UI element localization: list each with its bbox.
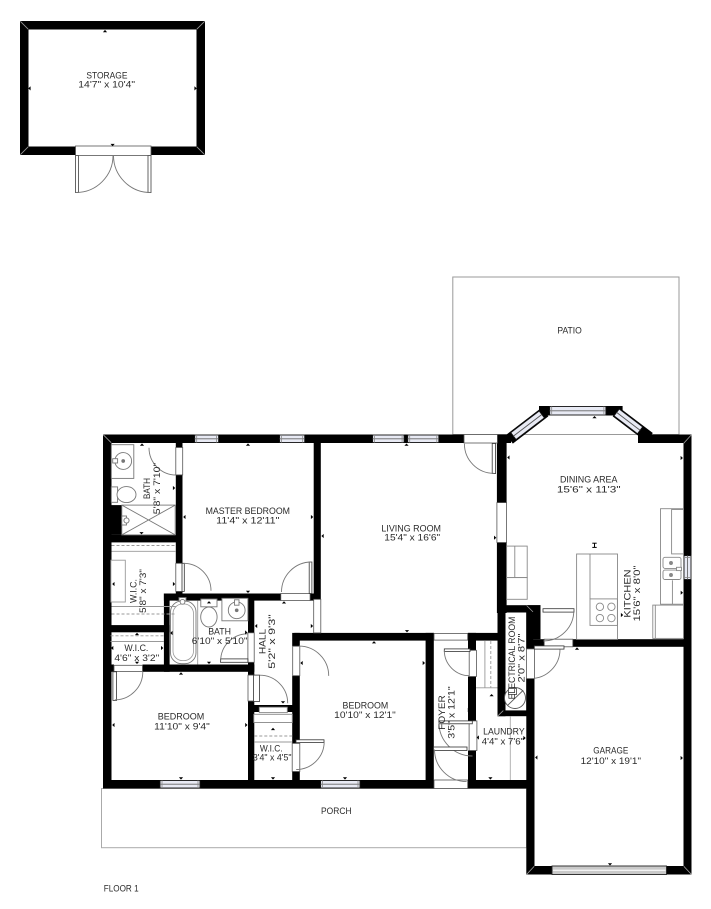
svg-text:11'10" x 9'4": 11'10" x 9'4": [154, 721, 210, 732]
svg-text:FLOOR 1: FLOOR 1: [104, 883, 139, 894]
svg-text:14'7" x 10'4": 14'7" x 10'4": [78, 80, 135, 91]
svg-text:15'4" x 16'6": 15'4" x 16'6": [384, 533, 440, 544]
svg-text:2'0" x 8'7": 2'0" x 8'7": [517, 634, 528, 683]
svg-text:PATIO: PATIO: [557, 326, 581, 337]
svg-text:PORCH: PORCH: [321, 806, 352, 817]
svg-text:3'4" x 4'5": 3'4" x 4'5": [253, 752, 292, 763]
svg-text:5'8" x 7'10": 5'8" x 7'10": [152, 463, 163, 514]
svg-text:12'10" x 19'1": 12'10" x 19'1": [581, 756, 641, 767]
svg-text:5'8" x 7'3": 5'8" x 7'3": [138, 569, 149, 613]
svg-text:3'5" x 12'1": 3'5" x 12'1": [447, 686, 458, 738]
svg-text:10'10" x 12'1": 10'10" x 12'1": [334, 710, 396, 721]
svg-text:11'4" x 12'11": 11'4" x 12'11": [216, 515, 279, 526]
svg-text:4'4" x 7'6": 4'4" x 7'6": [482, 736, 524, 747]
svg-text:15'6" x 8'0": 15'6" x 8'0": [632, 566, 643, 622]
svg-text:4'6" x 3'2": 4'6" x 3'2": [114, 653, 159, 664]
svg-text:6'10" x 5'10": 6'10" x 5'10": [192, 636, 248, 647]
svg-text:15'6" x 11'3": 15'6" x 11'3": [557, 484, 621, 495]
svg-text:5'2" x 9'3": 5'2" x 9'3": [267, 614, 278, 669]
